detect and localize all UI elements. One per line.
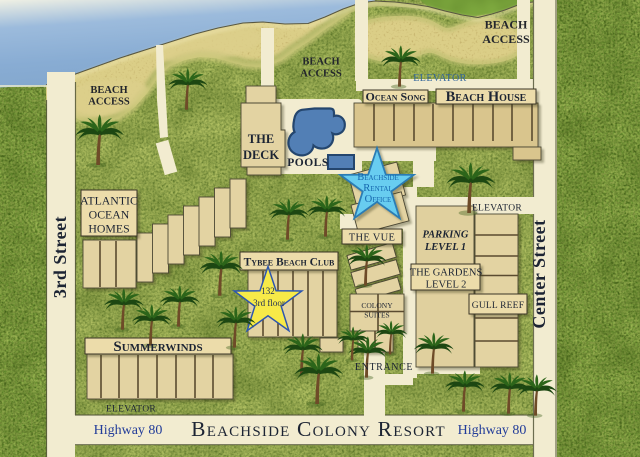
svg-text:Beachside: Beachside (357, 172, 399, 183)
svg-text:Beach House: Beach House (446, 89, 527, 105)
svg-text:DECK: DECK (243, 148, 279, 162)
svg-text:Office: Office (365, 194, 392, 205)
svg-text:132: 132 (261, 286, 275, 296)
svg-text:ELEVATOR: ELEVATOR (472, 204, 522, 214)
svg-text:Summerwinds: Summerwinds (113, 339, 202, 355)
svg-text:LEVEL 2: LEVEL 2 (426, 280, 467, 291)
svg-text:THE GARDENS: THE GARDENS (410, 268, 483, 279)
svg-text:ACCESS: ACCESS (300, 69, 342, 80)
svg-text:BEACH: BEACH (485, 18, 528, 32)
svg-text:PARKING: PARKING (423, 230, 469, 241)
svg-text:ATLANTIC: ATLANTIC (80, 194, 138, 208)
svg-text:ELEVATOR: ELEVATOR (106, 405, 156, 415)
svg-text:Ocean Song: Ocean Song (366, 90, 426, 104)
svg-text:HOMES: HOMES (88, 222, 129, 236)
svg-text:ELEVATOR: ELEVATOR (413, 73, 466, 84)
svg-text:3rd Street: 3rd Street (50, 216, 70, 298)
svg-text:THE VUE: THE VUE (349, 233, 396, 244)
svg-text:Tybee Beach Club: Tybee Beach Club (244, 257, 335, 269)
svg-text:THE: THE (248, 132, 274, 146)
svg-text:POOLS: POOLS (287, 157, 328, 169)
svg-text:3rd floor: 3rd floor (253, 298, 285, 308)
svg-text:GULL REEF: GULL REEF (472, 301, 524, 311)
svg-text:Beachside Colony Resort: Beachside Colony Resort (191, 417, 446, 441)
svg-text:LEVEL 1: LEVEL 1 (424, 242, 466, 253)
svg-text:Rental: Rental (363, 183, 392, 194)
svg-text:COLONY: COLONY (361, 301, 393, 310)
svg-text:ACCESS: ACCESS (482, 32, 530, 46)
svg-text:BEACH: BEACH (90, 85, 127, 96)
svg-text:Center Street: Center Street (529, 219, 549, 328)
svg-text:BEACH: BEACH (302, 57, 339, 68)
svg-text:Highway 80: Highway 80 (458, 423, 527, 438)
svg-text:Highway 80: Highway 80 (94, 423, 163, 438)
svg-text:OCEAN: OCEAN (89, 208, 130, 222)
svg-text:ACCESS: ACCESS (88, 97, 130, 108)
svg-text:SUITES: SUITES (364, 311, 389, 320)
svg-text:ENTRANCE: ENTRANCE (355, 362, 413, 373)
